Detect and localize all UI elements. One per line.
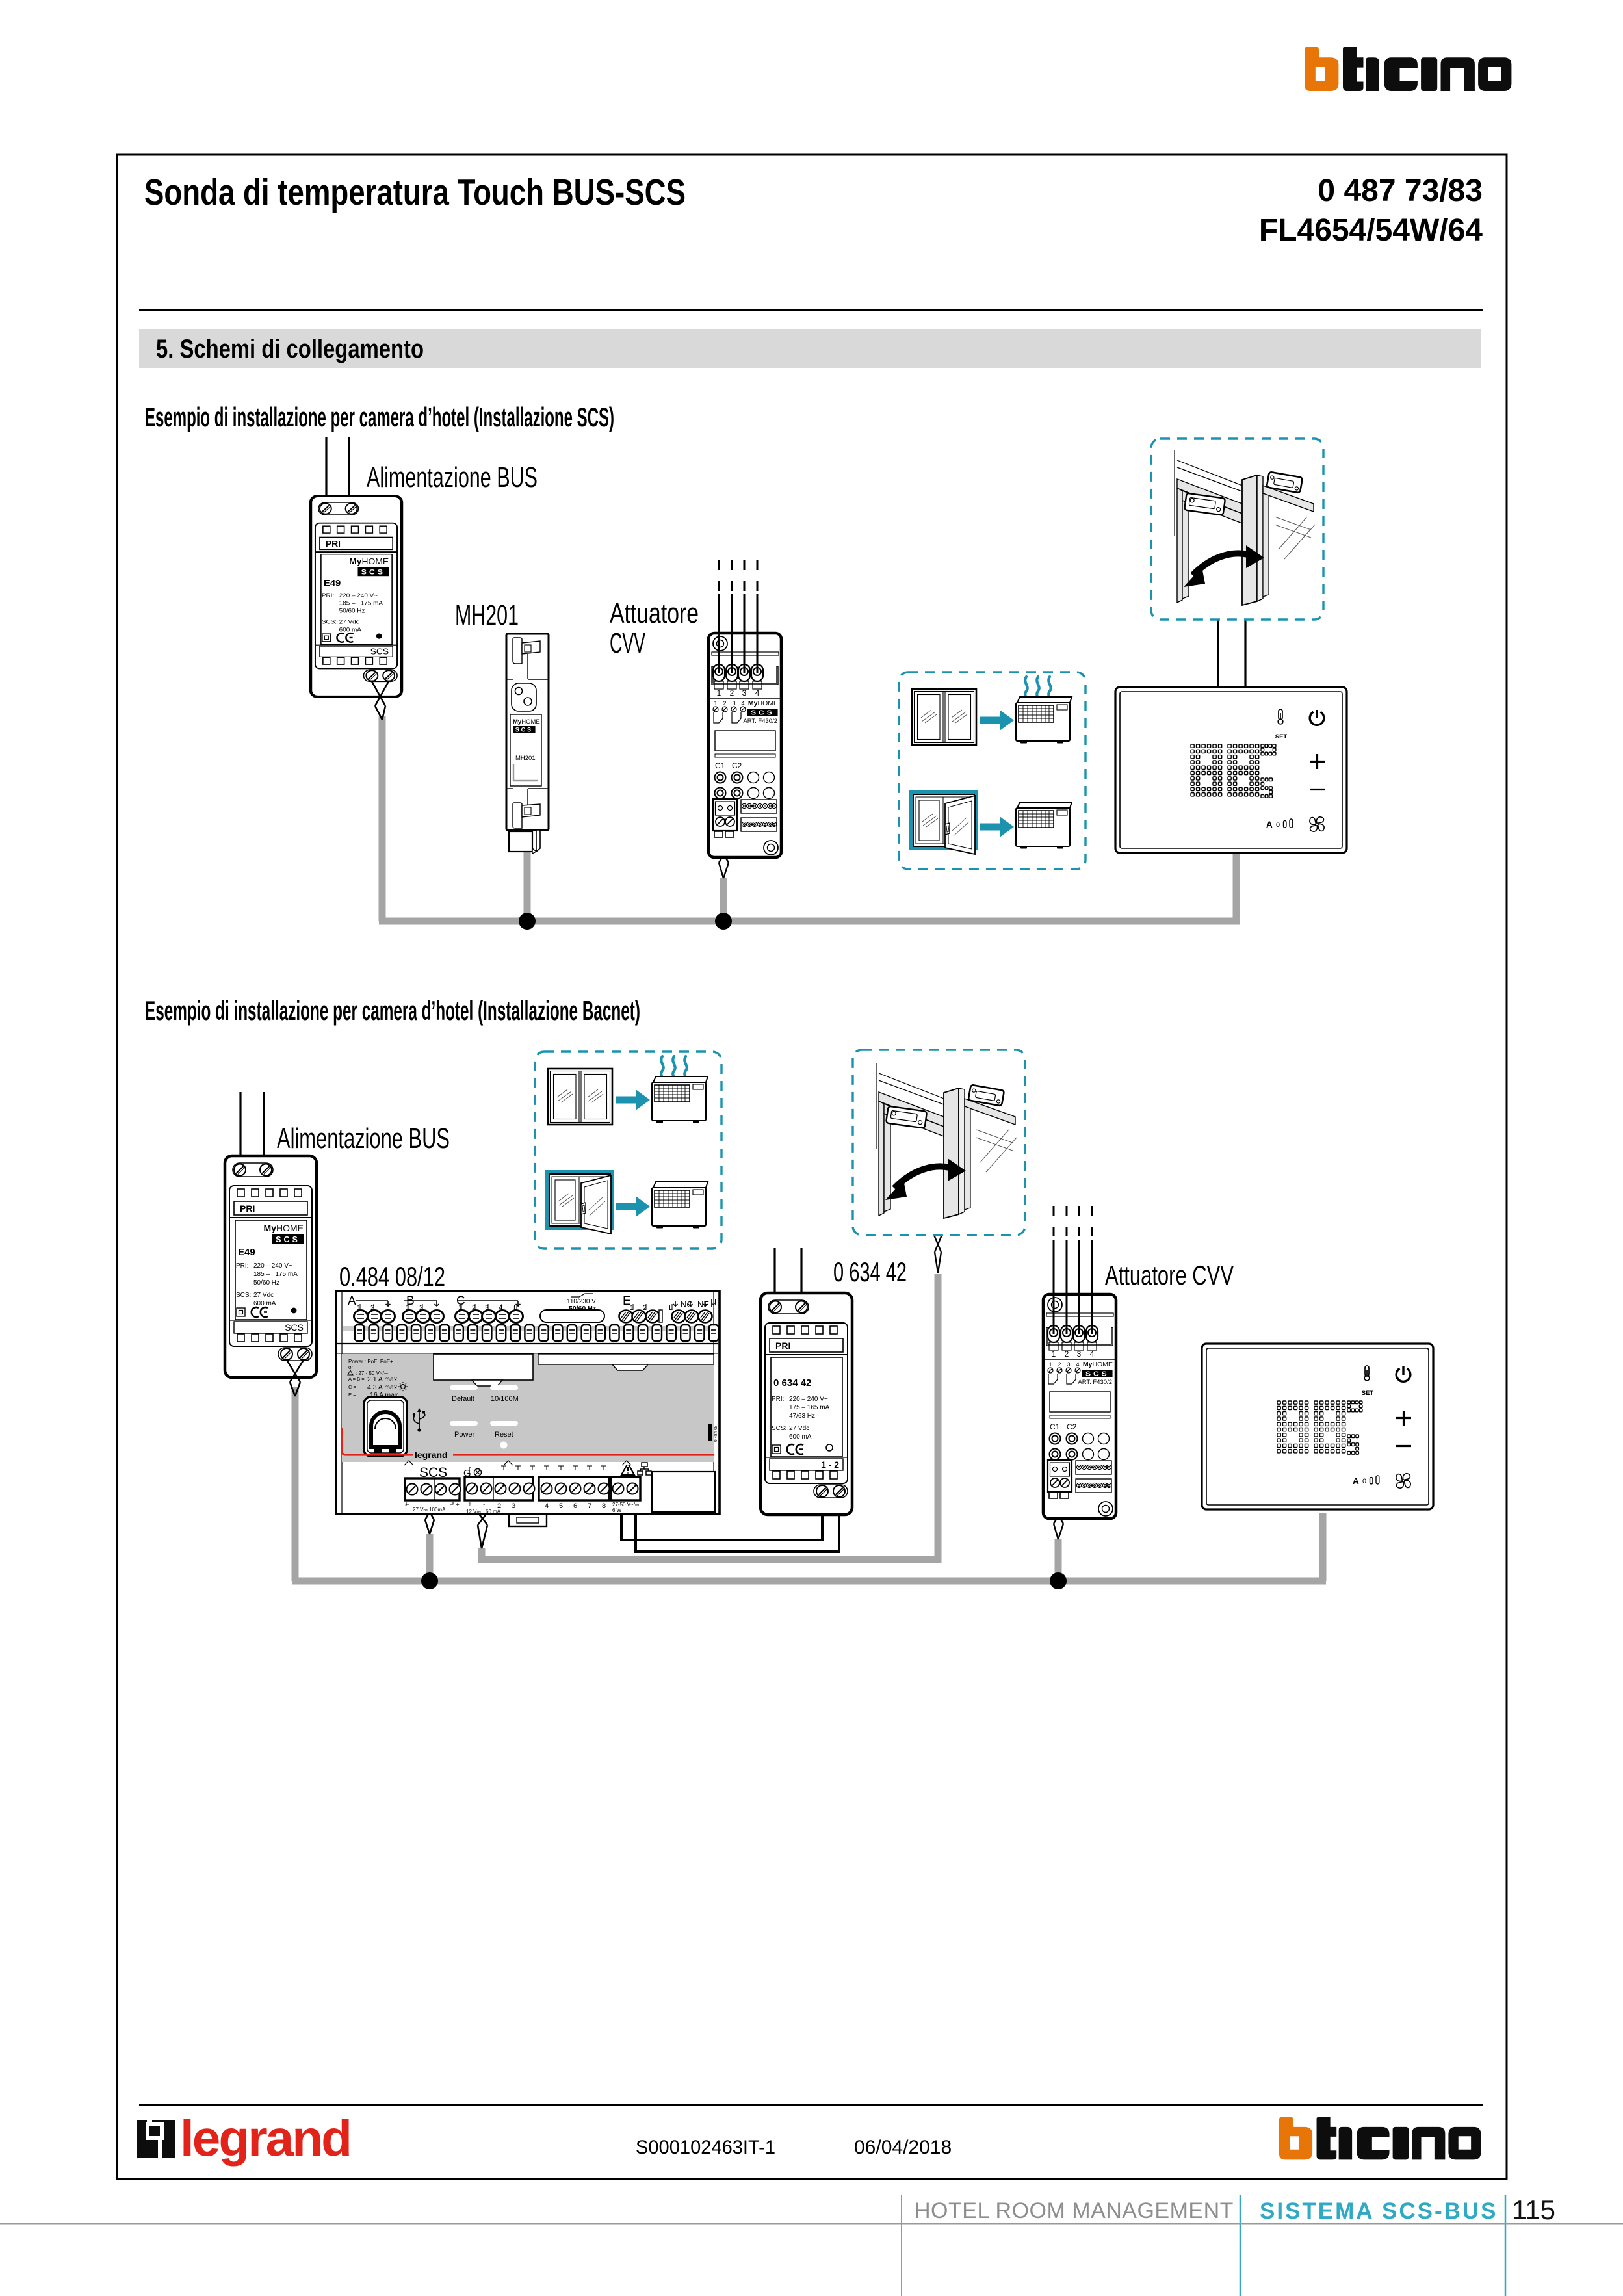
svg-text:0.484 08: 0.484 08 (714, 1425, 718, 1442)
svg-text:NC: NC (681, 1299, 693, 1309)
svg-text:8: 8 (602, 1502, 606, 1510)
svg-text:2: 2 (497, 1502, 501, 1510)
svg-text:115: 115 (1512, 2195, 1555, 2225)
svg-text:S000102463IT-1: S000102463IT-1 (636, 2137, 775, 2158)
svg-text:06/04/2018: 06/04/2018 (854, 2137, 952, 2158)
svg-text:Attuatore CVV: Attuatore CVV (1105, 1260, 1234, 1290)
svg-text:Esempio di installazione per c: Esempio di installazione per camera d’ho… (145, 995, 640, 1026)
svg-text:E =: E = (348, 1392, 356, 1398)
svg-text:4: 4 (545, 1502, 549, 1510)
svg-text:C =: C = (348, 1384, 357, 1390)
svg-text:5. Schemi di collegamento: 5. Schemi di collegamento (156, 335, 424, 363)
svg-text:μ: μ (710, 1295, 717, 1307)
svg-text:+: + (456, 1502, 460, 1509)
svg-text:Power: Power (454, 1431, 475, 1439)
svg-text:Power : PoE, PoE+: Power : PoE, PoE+ (348, 1359, 393, 1364)
svg-text:6: 6 (573, 1502, 577, 1510)
svg-text:-: - (483, 1501, 485, 1508)
svg-text:MH201: MH201 (455, 599, 519, 631)
svg-text:10/100M: 10/100M (491, 1395, 519, 1403)
svg-text:A = B =: A = B = (348, 1376, 365, 1382)
svg-text:12 V⎓: 12 V⎓ (466, 1509, 481, 1515)
svg-text:CVV: CVV (610, 627, 645, 659)
svg-text:HOTEL ROOM MANAGEMENT: HOTEL ROOM MANAGEMENT (915, 2198, 1234, 2223)
svg-text:2,1 A max: 2,1 A max (367, 1376, 398, 1383)
svg-text:27-50 V~/⎓: 27-50 V~/⎓ (612, 1502, 640, 1507)
svg-text:5: 5 (559, 1502, 563, 1510)
svg-text:Alimentazione BUS: Alimentazione BUS (367, 462, 538, 493)
svg-text:A: A (348, 1294, 356, 1308)
svg-text:27 V⎓ 100mA: 27 V⎓ 100mA (413, 1507, 446, 1513)
svg-text:Alimentazione BUS: Alimentazione BUS (277, 1123, 450, 1155)
svg-text:0 487 73/83: 0 487 73/83 (1318, 174, 1483, 208)
svg-text:legrand: legrand (415, 1450, 448, 1460)
svg-text:Reset: Reset (495, 1431, 513, 1439)
svg-text:7: 7 (588, 1502, 591, 1510)
svg-text:6 W: 6 W (612, 1507, 622, 1513)
svg-text:FL4654/54W/64: FL4654/54W/64 (1259, 213, 1483, 248)
svg-text:or: or (348, 1364, 353, 1370)
svg-text:Esempio di installazione per c: Esempio di installazione per camera d’ho… (145, 402, 614, 432)
svg-text:0.484 08/12: 0.484 08/12 (339, 1261, 445, 1292)
svg-text:Default: Default (452, 1395, 474, 1403)
svg-text:+: + (468, 1501, 472, 1508)
svg-text:0 634 42: 0 634 42 (833, 1257, 907, 1287)
svg-text:Attuatore: Attuatore (610, 597, 699, 629)
svg-text:Sonda di temperatura Touch BUS: Sonda di temperatura Touch BUS-SCS (144, 172, 686, 213)
svg-text:3: 3 (512, 1502, 515, 1510)
svg-text:4,3 A max: 4,3 A max (367, 1383, 398, 1391)
svg-text:SISTEMA SCS-BUS: SISTEMA SCS-BUS (1260, 2198, 1498, 2224)
